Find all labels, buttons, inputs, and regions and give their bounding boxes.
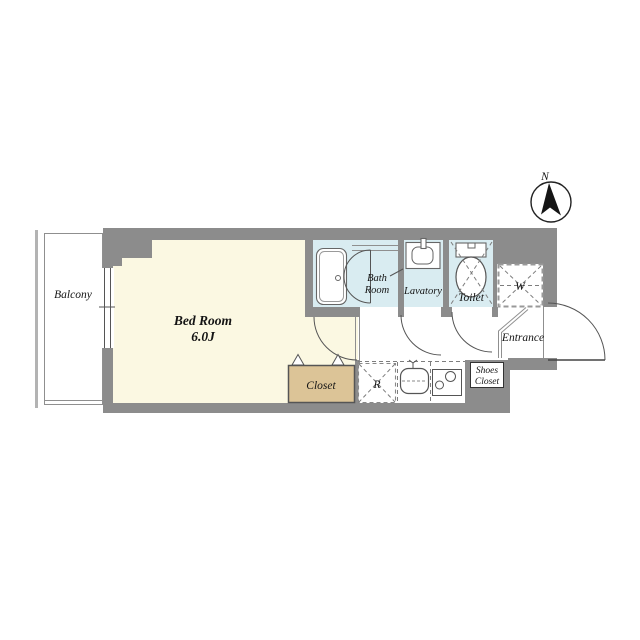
- balcony-label: Balcony: [54, 289, 93, 301]
- compass: N: [531, 171, 571, 222]
- bedroom-size-label: 6.0J: [191, 329, 216, 344]
- balcony-outline: [45, 234, 103, 405]
- washstand-faucet: [421, 239, 426, 249]
- toilet-door-swing[interactable]: [452, 312, 492, 352]
- bedroom-label: Bed Room: [173, 313, 232, 328]
- north-arrow-icon: [541, 183, 561, 216]
- shoes-closet-label-line1: Shoes: [476, 366, 498, 376]
- refrigerator-space-label: R: [372, 379, 380, 391]
- window-opening: [102, 268, 114, 348]
- balcony-area: [37, 230, 103, 408]
- bathroom-label-line2: Room: [364, 285, 390, 296]
- balcony-window: [99, 268, 115, 348]
- compass-north-label: N: [540, 171, 550, 183]
- floorplan-drawing: N Balcony Bed Room 6.0J Bath Room Lavato…: [0, 0, 640, 640]
- bathroom-label-line1: Bath: [367, 273, 387, 284]
- bathtub: [317, 249, 347, 305]
- toilet-label: Toilet: [458, 292, 485, 304]
- floorplan-canvas: N Balcony Bed Room 6.0J Bath Room Lavato…: [0, 0, 640, 640]
- entrance-door-swing: [548, 303, 605, 360]
- shoes-closet-label-line2: Closet: [475, 377, 500, 387]
- lavatory-group: [406, 239, 440, 269]
- washer-space-label: W: [515, 281, 526, 293]
- entrance-label: Entrance: [501, 332, 544, 344]
- toilet-bowl: [456, 257, 486, 297]
- closet-label: Closet: [306, 380, 336, 392]
- lavatory-label: Lavatory: [403, 286, 442, 297]
- toilet-tank: [456, 243, 486, 257]
- lavatory-door-swing[interactable]: [401, 315, 441, 355]
- sink-faucet: [409, 360, 417, 368]
